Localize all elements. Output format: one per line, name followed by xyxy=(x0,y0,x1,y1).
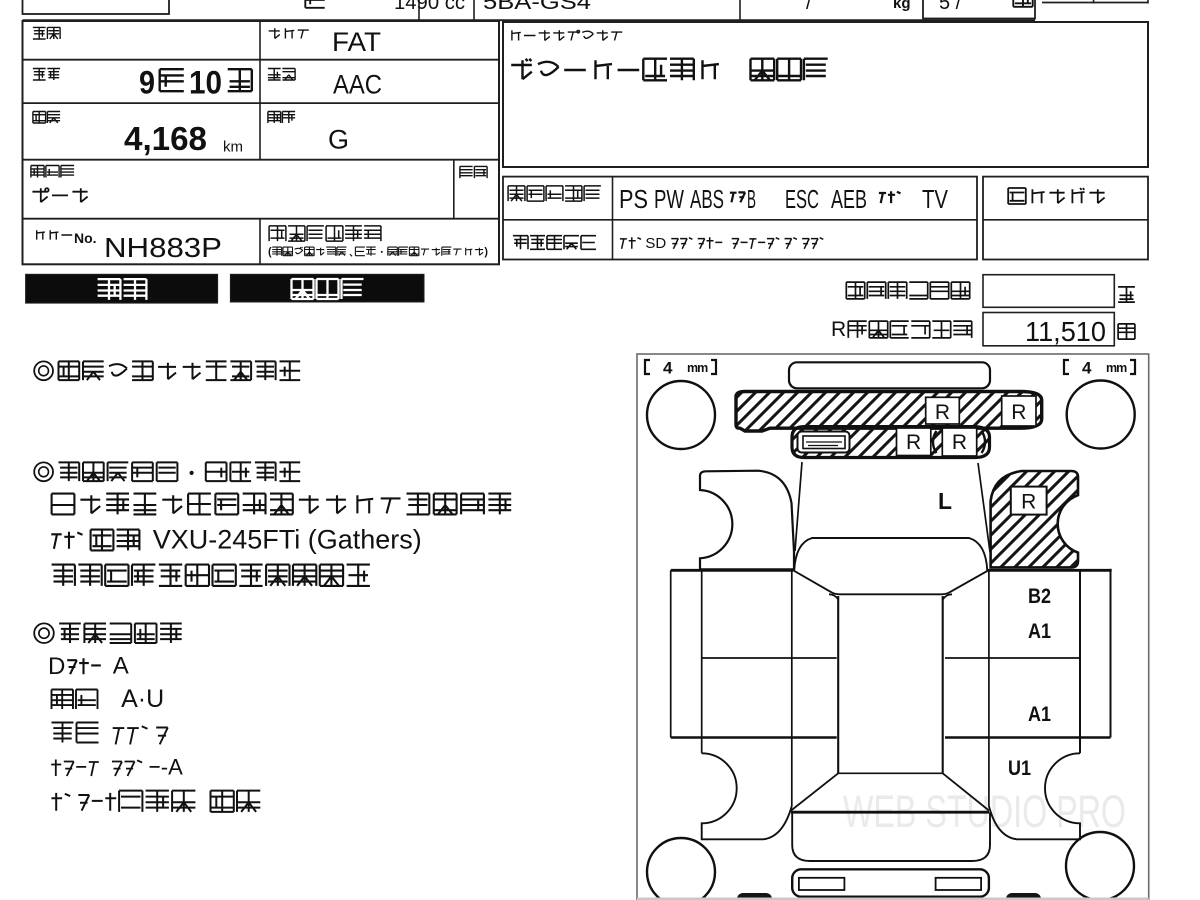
svg-text:D: D xyxy=(48,653,65,680)
svg-text:R: R xyxy=(1011,401,1026,424)
svg-text:PW: PW xyxy=(654,184,684,214)
svg-text:mm: mm xyxy=(687,361,708,375)
svg-text:ABS: ABS xyxy=(690,184,724,214)
svg-text:A1: A1 xyxy=(1028,620,1051,643)
svg-text:VXU-245FTi (Gathers): VXU-245FTi (Gathers) xyxy=(153,524,422,554)
svg-text:AEB: AEB xyxy=(831,184,867,214)
svg-text:kg: kg xyxy=(893,0,911,12)
svg-text:ESC: ESC xyxy=(785,184,819,214)
svg-text:(: ( xyxy=(268,246,272,258)
svg-text:-A: -A xyxy=(161,755,183,780)
svg-text:4: 4 xyxy=(1082,359,1092,378)
svg-text:5BA-GS4: 5BA-GS4 xyxy=(483,0,591,14)
svg-text:TV: TV xyxy=(922,184,949,214)
svg-text:A1: A1 xyxy=(1028,703,1051,726)
svg-text:L: L xyxy=(938,488,952,514)
svg-text:FAT: FAT xyxy=(332,27,381,57)
svg-text:B: B xyxy=(747,184,756,214)
svg-text:10: 10 xyxy=(189,65,222,101)
svg-text:B2: B2 xyxy=(1028,585,1051,608)
svg-text:G: G xyxy=(328,125,349,155)
svg-text:km: km xyxy=(223,139,243,156)
svg-text:AAC: AAC xyxy=(333,70,382,100)
svg-text:4: 4 xyxy=(663,359,673,378)
svg-text:A: A xyxy=(113,653,129,680)
svg-text:): ) xyxy=(484,246,488,258)
svg-text:U1: U1 xyxy=(1008,757,1031,780)
svg-text:SD: SD xyxy=(645,235,666,252)
svg-text:4,168: 4,168 xyxy=(124,120,207,157)
svg-text:PS: PS xyxy=(619,184,648,214)
svg-text:/: / xyxy=(806,0,812,14)
svg-text:R: R xyxy=(1021,491,1036,514)
svg-text:1490 cc: 1490 cc xyxy=(394,0,465,14)
svg-text:No.: No. xyxy=(74,230,97,246)
svg-text:NH883P: NH883P xyxy=(104,232,222,263)
svg-text:11,510: 11,510 xyxy=(1025,316,1106,347)
svg-text:R: R xyxy=(952,431,967,454)
svg-text:R: R xyxy=(831,318,846,341)
svg-text:R: R xyxy=(906,431,921,454)
svg-text:mm: mm xyxy=(1106,361,1127,375)
svg-text:R: R xyxy=(935,401,950,424)
svg-text:9: 9 xyxy=(139,65,155,101)
svg-text:A·U: A·U xyxy=(121,685,164,713)
svg-text:5 /: 5 / xyxy=(939,0,962,14)
